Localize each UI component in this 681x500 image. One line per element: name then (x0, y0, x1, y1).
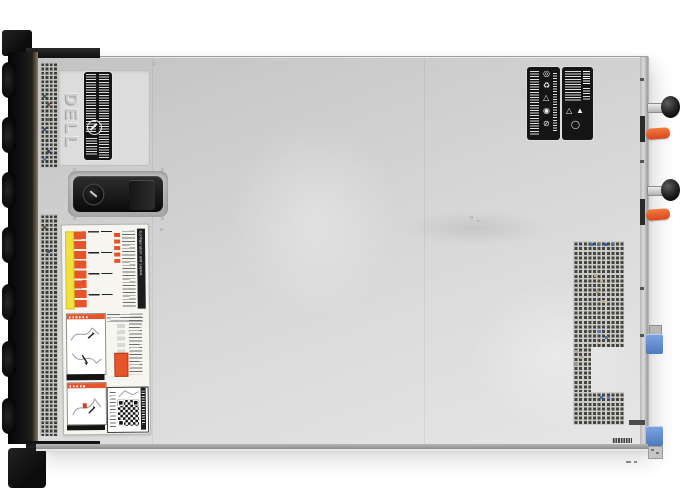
recycle-icon: ♻ (543, 82, 550, 90)
rivet (73, 217, 76, 220)
micro-mark (634, 461, 637, 463)
vent-glint (611, 243, 614, 246)
regulatory-label: △ ▲ ◯ (562, 67, 593, 140)
model-micro-label (612, 438, 632, 443)
micro-text-block (530, 71, 539, 135)
rivet (153, 62, 156, 65)
micro-mark (626, 461, 631, 463)
rear-latch-tab (646, 426, 663, 446)
drive-bay-bump (2, 398, 16, 434)
latch-keylock-icon (84, 185, 103, 204)
drive-bay-bump (2, 341, 16, 377)
rear-vent-grid (573, 392, 624, 425)
rail-slot-mark (640, 334, 644, 337)
warning-triangle-icon: △ (543, 94, 549, 102)
cover-seam (424, 58, 425, 444)
dimm-map-mini-column (114, 233, 120, 263)
vent-glint (600, 396, 603, 399)
service-label-title-bar: Configuration and Layout (137, 229, 146, 309)
slot-list-micro-text (129, 317, 143, 375)
system-information-label (84, 72, 112, 160)
vent-glint (597, 243, 600, 246)
rivet (160, 228, 163, 231)
instruction-panel (66, 313, 107, 375)
vent-glint (580, 356, 583, 359)
micro-text-block (565, 71, 581, 101)
front-vent-grid (40, 214, 58, 436)
certification-circle-icon: ◉ (543, 107, 550, 115)
vent-glint (605, 336, 608, 339)
micro-text-block (583, 88, 590, 100)
vent-glint (604, 243, 607, 246)
instruction-header (68, 383, 106, 388)
qr-code (118, 400, 139, 426)
vent-glint (43, 226, 46, 229)
certification-circle-icon: ◯ (571, 121, 580, 129)
rail-slot-mark (640, 160, 644, 163)
server-top-view-photo: DELL Configuration and Layout (0, 0, 681, 500)
vent-glint (47, 103, 50, 106)
fingerprint-smudge (400, 210, 550, 246)
micro-text-block (99, 74, 109, 158)
psu-handle-grip (661, 179, 680, 201)
barcode (583, 71, 590, 85)
vent-glint (590, 243, 593, 246)
vent-glint (598, 330, 601, 333)
highlighted-slot-block (114, 353, 128, 377)
rear-panel-strip (629, 420, 645, 425)
rivet (470, 216, 473, 219)
vent-glint (47, 250, 50, 253)
qr-panel-diagram (117, 389, 141, 399)
qr-information-panel (107, 387, 149, 433)
vent-glint (596, 290, 599, 293)
config-micro-text (122, 231, 136, 309)
vent-glint (575, 350, 578, 353)
drive-bay-bump (2, 117, 16, 153)
latch-release-tab (129, 180, 155, 210)
rivet (161, 217, 164, 220)
dimm-map-column (101, 231, 113, 307)
service-configuration-label: Configuration and Layout (61, 224, 151, 436)
rail-slot-mark (640, 287, 644, 290)
vent-glint (602, 300, 605, 303)
cover-highlight (230, 120, 400, 320)
micro-text-block (553, 73, 557, 131)
regulatory-label: ◎ ♻ △ ◉ ⊘ (527, 67, 560, 140)
dimm-map-column (88, 231, 100, 307)
service-label-title: Configuration and Layout (138, 231, 142, 276)
qr-panel-side-bar (141, 388, 146, 430)
vent-glint (607, 396, 610, 399)
instruction-header (67, 314, 105, 319)
psu-release-tab (646, 127, 671, 140)
drive-bay-bump (2, 284, 16, 320)
label-bottom-bar (67, 425, 105, 430)
qr-panel-micro-text (110, 392, 116, 428)
instruction-diagram (68, 320, 104, 346)
instruction-panel (67, 382, 107, 425)
chassis-bottom-highlight (36, 449, 648, 451)
vent-glint (43, 95, 46, 98)
drive-bay-bump (2, 62, 16, 98)
rear-latch-tab (646, 334, 663, 354)
vent-glint (575, 363, 578, 366)
rack-ear-bottom (8, 448, 46, 488)
vent-glint (47, 150, 50, 153)
rivet (477, 220, 479, 222)
warning-triangle-icon: ▲ (576, 107, 584, 115)
psu-release-tab (646, 208, 671, 221)
label-divider-bar (66, 374, 104, 380)
rail-slot-mark (640, 78, 644, 81)
vent-glint (594, 274, 597, 277)
psu-bay-edge (640, 199, 645, 225)
rear-vent-grid (573, 347, 591, 393)
warning-triangle-icon: △ (566, 107, 572, 115)
certification-circle-icon: ◎ (543, 70, 550, 78)
drive-bay-bump (2, 227, 16, 263)
micro-text-block (86, 138, 97, 156)
latch-foot (648, 446, 663, 459)
drive-bay-bump (2, 172, 16, 208)
instruction-diagram (69, 389, 105, 422)
prohibition-circle-icon: ⊘ (543, 120, 550, 128)
prohibition-circle-icon (87, 120, 102, 135)
instruction-diagram (68, 347, 104, 373)
dimm-map-column (74, 231, 87, 307)
vent-glint (600, 280, 603, 283)
cover-seam (152, 58, 153, 444)
psu-handle-grip (661, 96, 680, 118)
psu-bay-edge (640, 116, 645, 142)
vent-glint (43, 158, 46, 161)
